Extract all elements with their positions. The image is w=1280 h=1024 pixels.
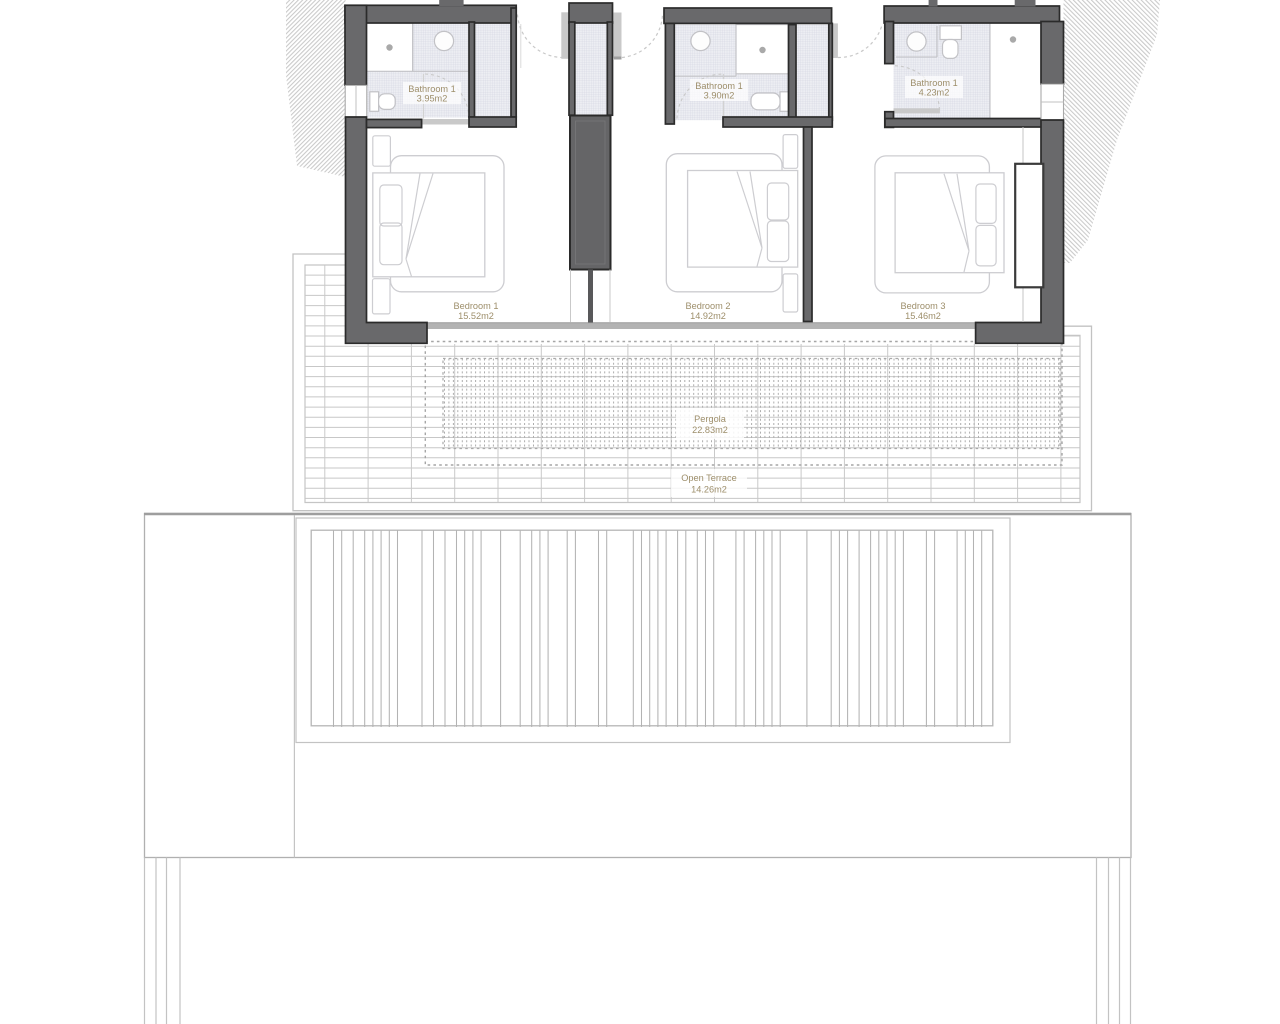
svg-text:4.23m2: 4.23m2	[919, 88, 950, 98]
svg-text:Bathroom 1: Bathroom 1	[408, 84, 456, 94]
svg-text:3.95m2: 3.95m2	[417, 94, 448, 104]
svg-text:15.46m2: 15.46m2	[905, 311, 941, 321]
svg-text:Bedroom 1: Bedroom 1	[454, 301, 499, 311]
svg-text:22.83m2: 22.83m2	[692, 425, 728, 435]
svg-text:Bathroom 1: Bathroom 1	[910, 78, 958, 88]
svg-text:3.90m2: 3.90m2	[704, 91, 735, 101]
svg-text:Pergola: Pergola	[694, 414, 727, 424]
svg-text:15.52m2: 15.52m2	[458, 311, 494, 321]
svg-text:14.26m2: 14.26m2	[691, 485, 727, 495]
svg-text:Open Terrace: Open Terrace	[681, 473, 737, 483]
svg-text:Bedroom 2: Bedroom 2	[686, 301, 731, 311]
svg-text:Bedroom 3: Bedroom 3	[901, 301, 946, 311]
svg-text:14.92m2: 14.92m2	[690, 311, 726, 321]
svg-text:Bathroom 1: Bathroom 1	[695, 81, 743, 91]
